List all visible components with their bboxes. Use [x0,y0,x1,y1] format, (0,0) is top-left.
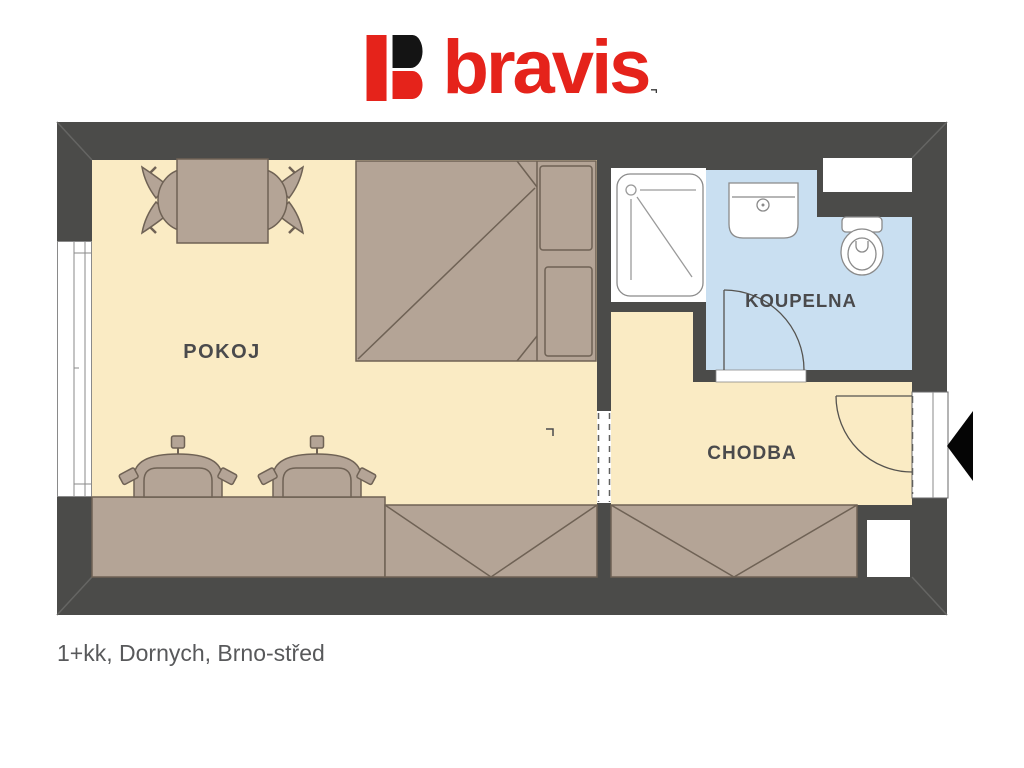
entry-arrow-icon [947,411,973,481]
kitchen-counter-icon [92,497,385,577]
pillow-icon [540,166,592,250]
window [58,241,93,497]
label-pokoj: POKOJ [183,341,261,363]
page: bravis ¬ [0,0,1024,768]
label-koupelna: KOUPELNA [745,290,857,311]
sink-icon [729,183,798,238]
listing-caption: 1+kk, Dornych, Brno-střed [57,640,325,667]
wall-niche-bottom [867,520,910,577]
toilet-icon [841,217,883,275]
wall-niche-top [823,158,912,192]
label-chodba: CHODBA [707,443,796,464]
built-in-wardrobe-chodba-icon [611,505,857,577]
dining-table-icon [177,159,268,243]
built-in-wardrobe-pokoj-icon [385,505,597,577]
shower-icon [617,174,703,296]
double-bed-icon [356,161,596,361]
pillow-icon [545,267,592,356]
interior-door-opening [597,411,611,503]
